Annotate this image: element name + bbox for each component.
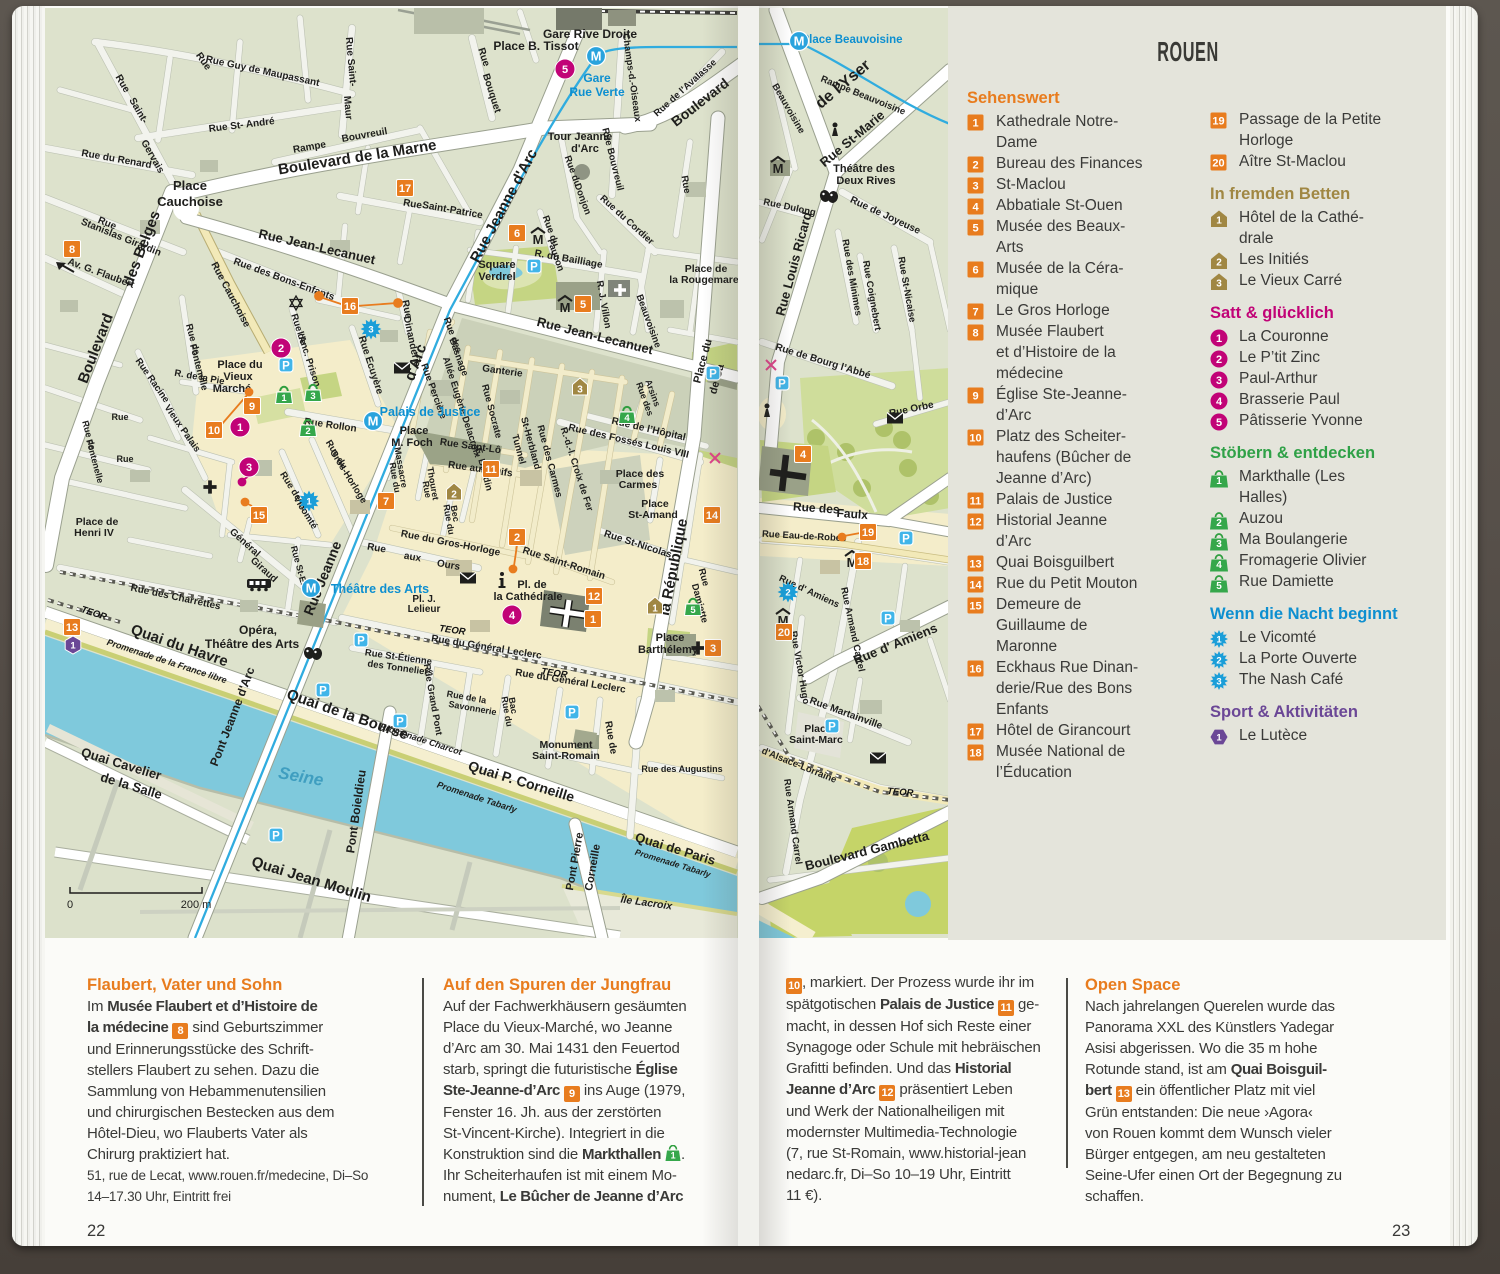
- svg-text:Place: Place: [400, 425, 429, 437]
- svg-text:1: 1: [1216, 476, 1222, 487]
- svg-text:13: 13: [66, 622, 78, 634]
- svg-text:5: 5: [562, 64, 568, 76]
- svg-text:6: 6: [972, 264, 978, 276]
- svg-text:5: 5: [580, 299, 586, 311]
- svg-text:3: 3: [1216, 539, 1222, 550]
- svg-text:10: 10: [208, 425, 220, 437]
- svg-text:0: 0: [67, 899, 73, 911]
- svg-text:P: P: [828, 722, 836, 734]
- svg-text:2: 2: [1216, 518, 1222, 529]
- svg-text:7: 7: [972, 306, 978, 318]
- svg-text:St-Amand: St-Amand: [628, 509, 678, 521]
- svg-text:Opéra,: Opéra,: [239, 623, 277, 637]
- svg-text:1: 1: [972, 117, 978, 129]
- svg-text:Barthélemy: Barthélemy: [638, 644, 699, 656]
- svg-text:1: 1: [281, 393, 287, 404]
- svg-text:4: 4: [800, 449, 807, 461]
- svg-text:7: 7: [383, 496, 389, 508]
- svg-text:Verdrel: Verdrel: [478, 271, 515, 283]
- svg-text:1: 1: [671, 1151, 676, 1161]
- svg-text:200 m: 200 m: [181, 899, 212, 911]
- svg-text:Henri IV: Henri IV: [74, 527, 114, 539]
- svg-text:6: 6: [514, 228, 520, 240]
- svg-text:2: 2: [514, 532, 520, 544]
- svg-text:M: M: [591, 49, 602, 64]
- svg-text:P: P: [530, 262, 538, 274]
- svg-text:5: 5: [1216, 581, 1222, 592]
- svg-text:19: 19: [862, 527, 874, 539]
- svg-text:Palais de Justice: Palais de Justice: [380, 405, 481, 419]
- svg-text:Faulx: Faulx: [836, 506, 869, 522]
- svg-text:16: 16: [969, 663, 981, 675]
- svg-text:1: 1: [306, 497, 312, 508]
- svg-text:Théâtre des: Théâtre des: [833, 163, 895, 175]
- svg-text:M: M: [306, 581, 317, 596]
- svg-text:P: P: [396, 717, 404, 729]
- svg-text:P: P: [272, 831, 280, 843]
- svg-text:5: 5: [1216, 417, 1222, 429]
- svg-text:3: 3: [246, 462, 252, 474]
- svg-text:Place du: Place du: [217, 359, 262, 371]
- svg-text:Lelieur: Lelieur: [408, 604, 441, 615]
- svg-text:Rue Verte: Rue Verte: [569, 85, 625, 99]
- svg-text:3: 3: [1216, 278, 1222, 289]
- svg-text:4: 4: [509, 610, 516, 622]
- svg-text:8: 8: [69, 244, 75, 256]
- svg-text:2: 2: [1216, 655, 1221, 666]
- svg-text:1: 1: [1216, 732, 1222, 743]
- svg-text:1: 1: [1216, 333, 1222, 345]
- svg-text:2: 2: [278, 343, 284, 355]
- svg-text:TEOR: TEOR: [887, 786, 914, 799]
- svg-text:1: 1: [70, 641, 76, 652]
- svg-text:la Cathédrale: la Cathédrale: [493, 591, 562, 603]
- svg-text:Cauchoise: Cauchoise: [157, 194, 223, 209]
- svg-text:Rue: Rue: [116, 454, 133, 464]
- svg-text:3: 3: [1216, 375, 1222, 387]
- svg-text:3: 3: [577, 385, 583, 396]
- svg-text:3: 3: [368, 325, 373, 336]
- svg-text:Place: Place: [656, 632, 685, 644]
- svg-text:P: P: [568, 708, 576, 720]
- svg-text:20: 20: [1212, 157, 1224, 169]
- svg-text:2: 2: [972, 159, 978, 171]
- svg-text:M: M: [794, 34, 805, 49]
- svg-text:Deux Rives: Deux Rives: [836, 175, 895, 187]
- svg-text:Saint-Romain: Saint-Romain: [532, 750, 600, 762]
- svg-text:M: M: [368, 414, 379, 429]
- svg-text:Pl. de: Pl. de: [517, 579, 546, 591]
- svg-text:2: 2: [1216, 354, 1222, 366]
- svg-text:P: P: [357, 636, 365, 648]
- svg-text:12: 12: [969, 516, 981, 528]
- svg-text:3: 3: [310, 391, 315, 402]
- svg-text:3: 3: [972, 180, 978, 192]
- svg-text:4: 4: [624, 413, 630, 424]
- svg-text:5: 5: [972, 222, 978, 234]
- svg-text:17: 17: [399, 183, 411, 195]
- svg-text:1: 1: [652, 604, 658, 615]
- svg-text:19: 19: [1212, 115, 1224, 127]
- svg-text:Gare: Gare: [583, 71, 611, 85]
- svg-text:13: 13: [969, 558, 981, 570]
- svg-text:M: M: [533, 232, 544, 247]
- svg-text:Carmes: Carmes: [619, 479, 658, 491]
- svg-text:2: 2: [451, 490, 457, 501]
- svg-text:Théâtre des Arts: Théâtre des Arts: [205, 637, 300, 651]
- svg-text:16: 16: [344, 301, 356, 313]
- svg-text:3: 3: [1216, 676, 1221, 687]
- svg-text:P: P: [319, 686, 327, 698]
- svg-text:5: 5: [690, 605, 696, 616]
- svg-text:1: 1: [1216, 215, 1222, 226]
- svg-text:P: P: [902, 534, 910, 546]
- svg-text:17: 17: [969, 726, 981, 738]
- svg-text:Théâtre des Arts: Théâtre des Arts: [331, 582, 429, 596]
- svg-text:9: 9: [249, 401, 255, 413]
- svg-text:15: 15: [253, 510, 265, 522]
- svg-text:18: 18: [857, 556, 869, 568]
- svg-text:P: P: [884, 614, 892, 626]
- svg-text:1: 1: [237, 422, 243, 434]
- svg-text:Square: Square: [478, 259, 515, 271]
- svg-text:Place: Place: [173, 178, 207, 193]
- svg-text:1: 1: [1216, 634, 1222, 645]
- svg-text:Place B. Tissot: Place B. Tissot: [493, 39, 578, 53]
- svg-text:Place Beauvoisine: Place Beauvoisine: [802, 34, 903, 46]
- svg-text:10: 10: [969, 432, 981, 444]
- svg-text:4: 4: [1216, 396, 1223, 408]
- svg-text:12: 12: [588, 591, 600, 603]
- svg-text:Maur: Maur: [341, 95, 354, 120]
- svg-text:2: 2: [305, 426, 310, 437]
- svg-text:Saint-Marc: Saint-Marc: [789, 734, 843, 746]
- svg-text:1: 1: [590, 614, 596, 626]
- svg-text:9: 9: [972, 390, 978, 402]
- svg-text:M: M: [560, 300, 571, 315]
- svg-text:8: 8: [972, 327, 978, 339]
- svg-text:14: 14: [969, 579, 982, 591]
- svg-text:4: 4: [1216, 560, 1222, 571]
- svg-text:d'Arc: d'Arc: [571, 143, 599, 155]
- svg-text:4: 4: [972, 201, 979, 213]
- svg-text:11: 11: [970, 495, 982, 507]
- svg-text:Vieux: Vieux: [223, 371, 253, 383]
- svg-text:11: 11: [485, 464, 497, 476]
- svg-text:P: P: [282, 361, 290, 373]
- svg-text:2: 2: [1216, 257, 1222, 268]
- svg-text:18: 18: [969, 747, 981, 759]
- svg-text:15: 15: [969, 600, 981, 612]
- svg-text:Rue: Rue: [111, 412, 128, 422]
